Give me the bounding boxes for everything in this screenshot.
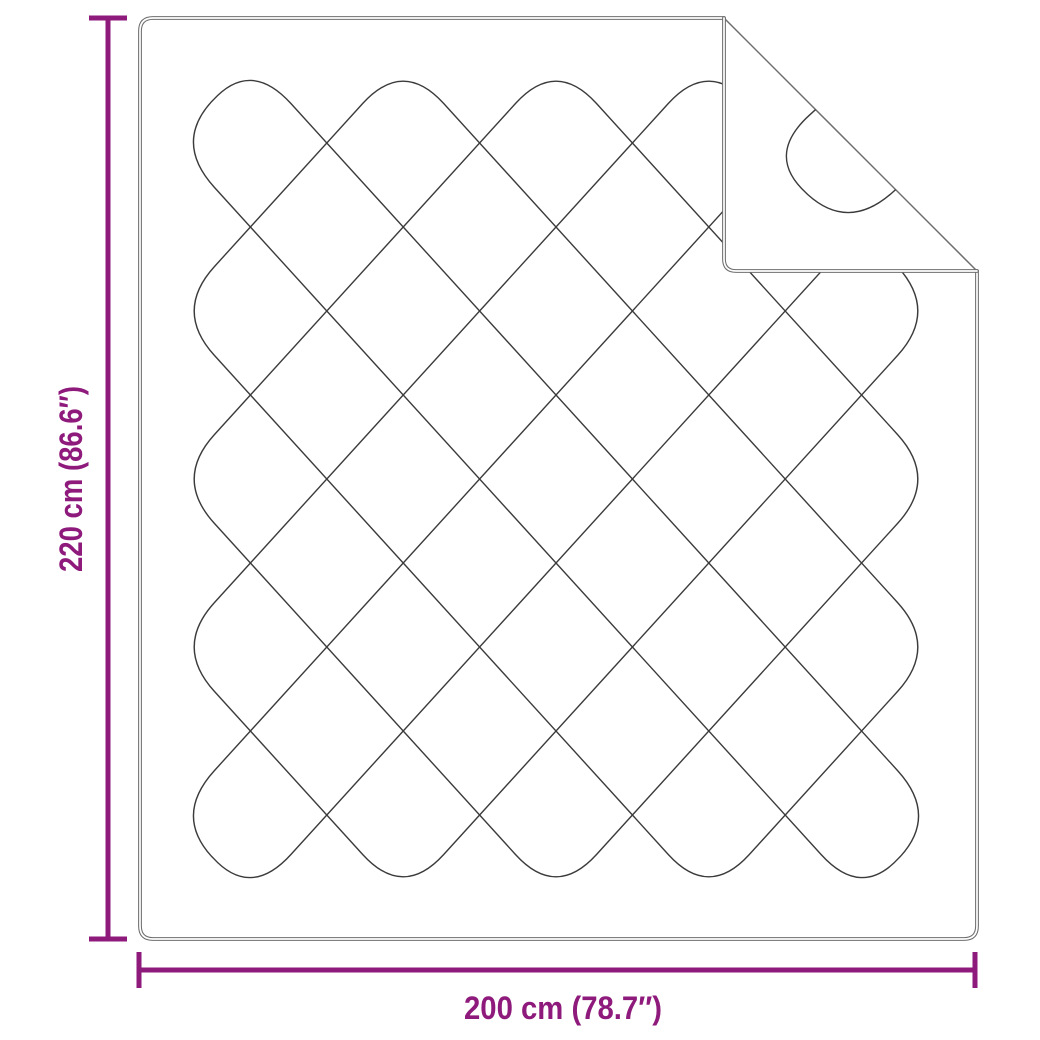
width-dimension: 200 cm (78.7″) xyxy=(137,952,978,1026)
width-dimension-left-cap xyxy=(137,952,142,988)
height-dimension-line xyxy=(106,18,111,939)
width-dimension-line xyxy=(139,968,975,973)
height-dimension-label: 220 cm (86.6″) xyxy=(53,386,89,572)
height-dimension: 220 cm (86.6″) xyxy=(53,16,127,942)
width-dimension-right-cap xyxy=(973,952,978,988)
product-diagram-svg: 220 cm (86.6″) 200 cm (78.7″) xyxy=(0,0,1040,1040)
height-dimension-top-cap xyxy=(89,16,127,21)
blanket-dimension-diagram: 220 cm (86.6″) 200 cm (78.7″) xyxy=(0,0,1040,1040)
width-dimension-label: 200 cm (78.7″) xyxy=(464,990,662,1026)
height-dimension-bottom-cap xyxy=(89,937,127,942)
